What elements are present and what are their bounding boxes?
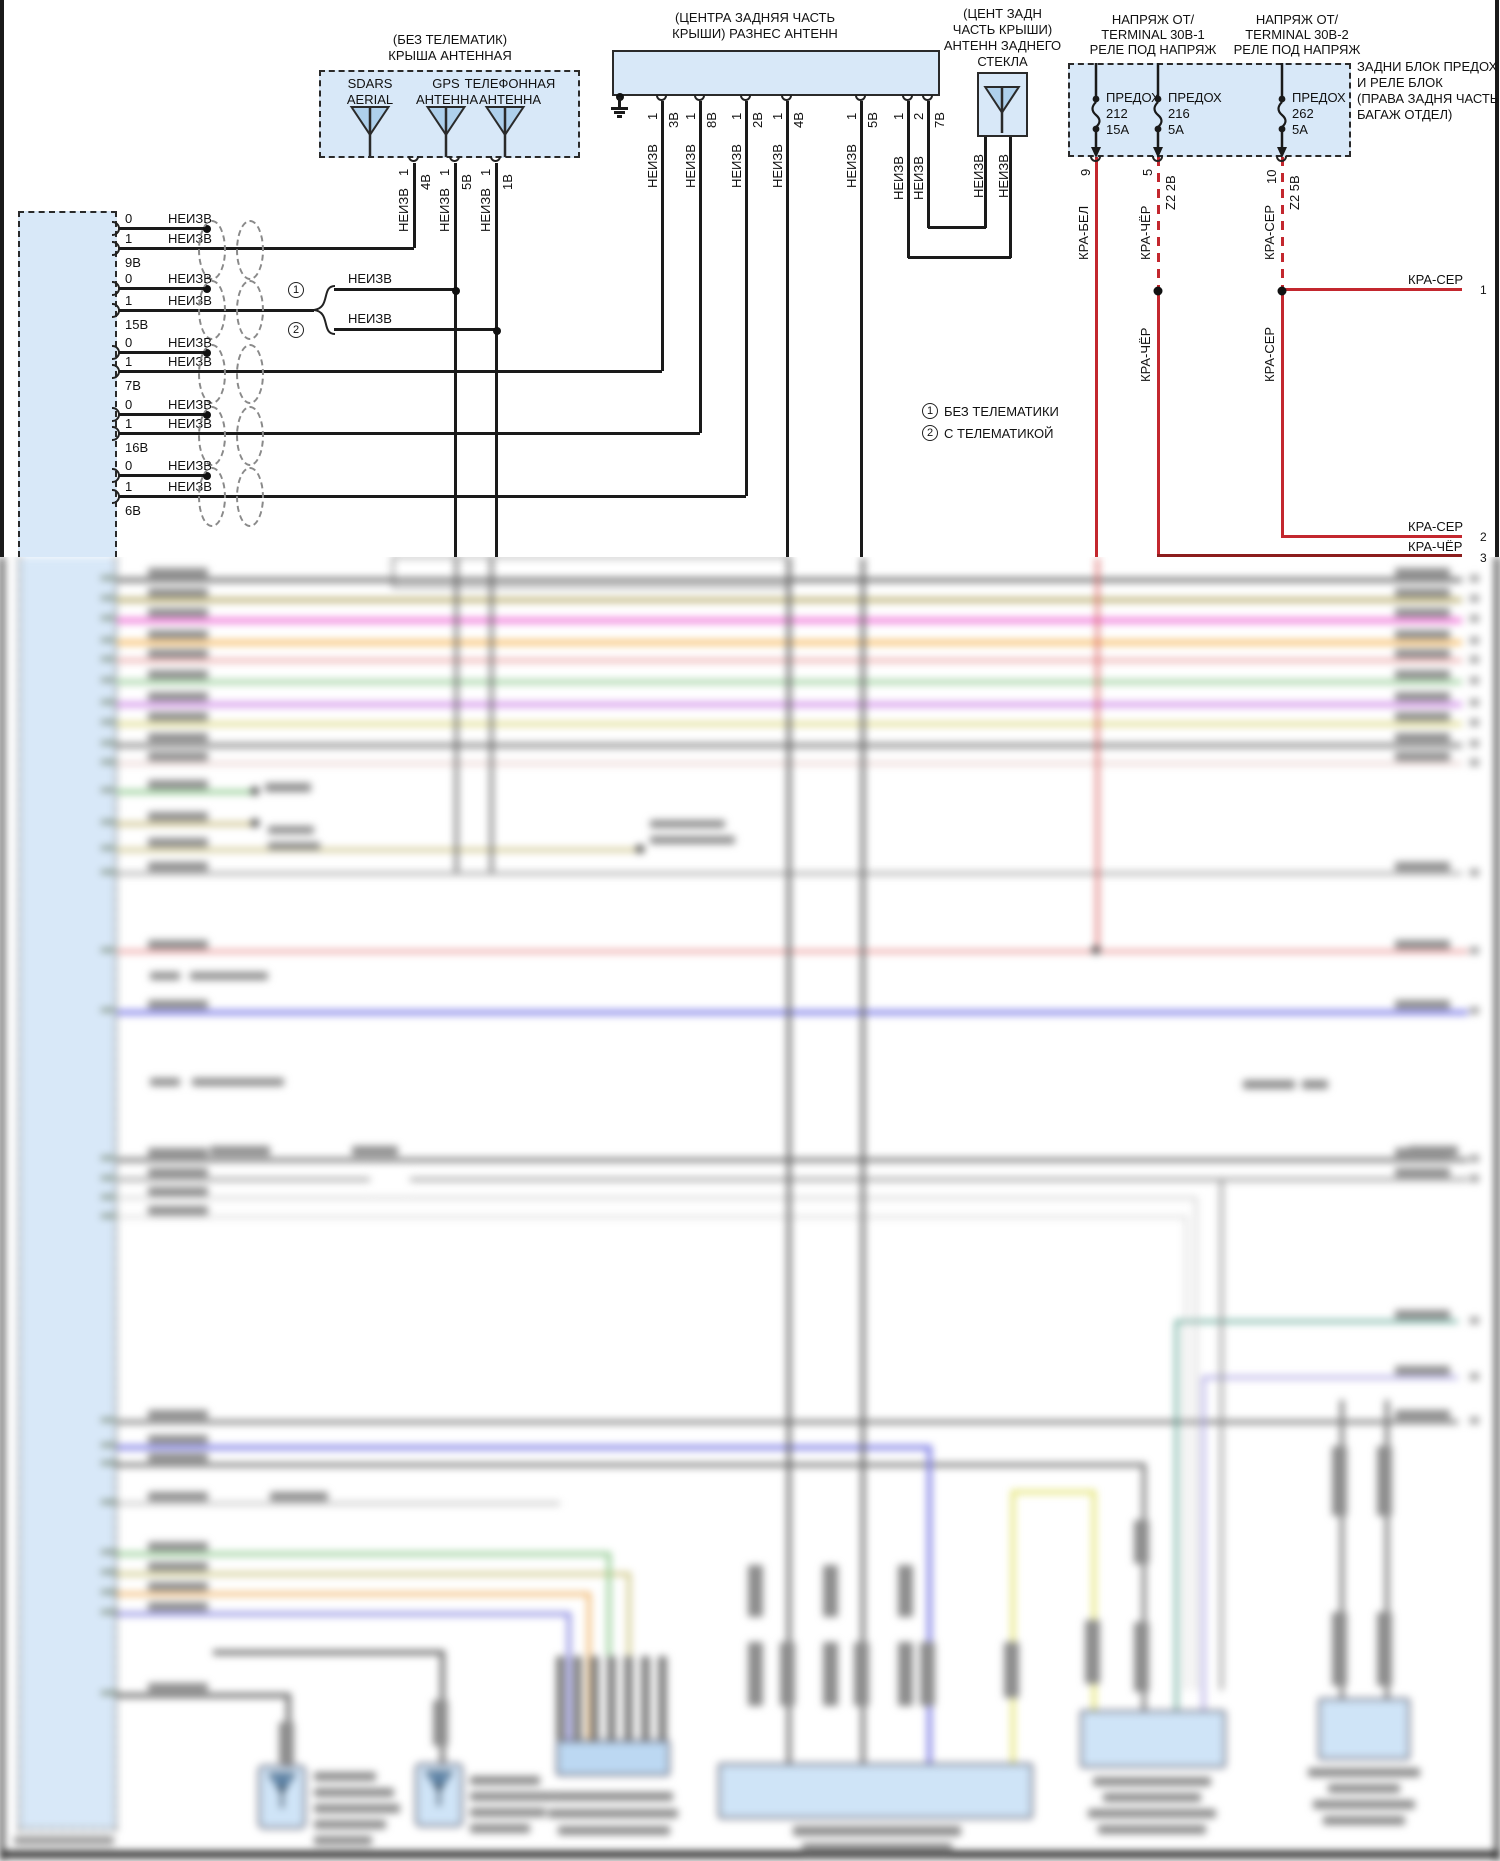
wire-kra-ser-solid <box>1281 290 1284 538</box>
blur-junction <box>1092 946 1101 955</box>
blur-text-patch <box>1134 1520 1149 1564</box>
blur-text-patch <box>148 630 208 639</box>
wire-label-kra-ser-low: КРА-СЕР <box>1263 316 1276 382</box>
roof-pin-number: 1 <box>438 162 451 176</box>
blur-pin-tick <box>101 576 117 580</box>
ecu-wire-a-4 <box>119 474 207 477</box>
blur-text-patch <box>148 940 208 949</box>
blur-text-patch <box>314 1804 400 1813</box>
fuse-block-label-4: БАГАЖ ОТДЕЛ) <box>1357 107 1452 122</box>
diversity-pin-number: 1 <box>771 100 784 120</box>
blur-wire-h <box>1011 1490 1092 1494</box>
supply1-line-1: НАПРЯЖ ОТ/ <box>1073 12 1233 27</box>
diversity-wire-1 <box>699 101 702 433</box>
roof-pin-connector: 1В <box>501 164 514 190</box>
blur-text-patch <box>748 1642 763 1706</box>
blur-wire-v <box>1220 1178 1223 1690</box>
roof-antenna-title-1: (БЕЗ ТЕЛЕМАТИК) <box>350 32 550 47</box>
right-wire-label-2: КРА-СЕР <box>1408 519 1463 534</box>
blur-text-patch <box>1395 1410 1450 1419</box>
blur-text-patch <box>1004 1642 1019 1698</box>
fuse-pin-number: 5 <box>1141 162 1154 176</box>
diversity-pin-connector: 8В <box>705 102 718 128</box>
diversity-pin-connector: 7В <box>933 102 946 128</box>
fuse-block-label-2: И РЕЛЕ БЛОК <box>1357 75 1443 90</box>
diversity-pin-connector: 4В <box>792 102 805 128</box>
blur-pin-tick <box>101 1156 117 1160</box>
ecu-connector-box <box>18 211 117 557</box>
blur-pin-tick <box>101 1570 117 1574</box>
wire-label-kra-cher-top: КРА-ЧЁР <box>1139 194 1152 260</box>
wiring-diagram-page: (БЕЗ ТЕЛЕМАТИК) КРЫША АНТЕННАЯ SDARS AER… <box>0 0 1500 1861</box>
ecu-pin-b: 1 <box>125 354 132 369</box>
blur-pin-tick <box>101 1176 117 1180</box>
blur-wire-v <box>1495 557 1499 1861</box>
roof-pin-number: 1 <box>479 162 492 176</box>
blur-text-patch <box>148 1562 208 1571</box>
blur-text-patch <box>190 972 268 980</box>
component-connector <box>556 1740 670 1776</box>
fuse-symbol-216 <box>1150 63 1166 159</box>
blur-wire-h <box>117 1463 1142 1467</box>
ecu-wire-a-0 <box>119 227 207 230</box>
blur-text-patch <box>1395 862 1450 871</box>
blur-text-patch <box>148 649 208 658</box>
glass-wire-label-1: НЕИЗВ <box>997 146 1010 198</box>
blur-text-patch <box>658 1656 667 1740</box>
supply1-line-2: TERMINAL 30В-1 <box>1073 27 1233 42</box>
blur-wire-h <box>117 848 645 852</box>
blur-text-patch <box>1302 1080 1328 1089</box>
blur-text-patch <box>1377 1612 1392 1686</box>
blur-wire-v <box>455 558 458 872</box>
ecu-pin-a: 0 <box>125 397 132 412</box>
twisted-pair-symbol <box>236 344 264 404</box>
blur-wire-h <box>117 1592 587 1596</box>
blur-pin-tick <box>101 1691 117 1695</box>
blur-pin-tick <box>101 820 117 824</box>
junction-dot-ser <box>1278 287 1287 296</box>
blur-pin-tick <box>101 1590 117 1594</box>
blur-wire-h <box>117 1010 1468 1015</box>
blur-text-patch <box>314 1772 376 1781</box>
right-pin-1: 1 <box>1480 283 1487 298</box>
blur-pin-tick <box>101 1610 117 1614</box>
diversity-wire-label: НЕИЗВ <box>730 136 743 188</box>
gps-antenna-icon <box>424 104 468 160</box>
legend-text-1: БЕЗ ТЕЛЕМАТИКИ <box>944 404 1059 419</box>
blur-junction <box>251 787 260 796</box>
wire-kra-cher-solid <box>1157 290 1160 557</box>
fuse-symbol-212 <box>1088 63 1104 159</box>
variant-circle-1: 1 <box>288 282 304 298</box>
blur-text-patch <box>1395 733 1450 742</box>
blur-text-patch <box>279 1722 294 1764</box>
blur-text-patch <box>1088 1809 1216 1818</box>
wire-label-kra-ser-top: КРА-СЕР <box>1263 194 1276 260</box>
ecu-connector-label: 15В <box>125 317 148 332</box>
diversity-wire-label: НЕИЗВ <box>684 136 697 188</box>
roof-wire-label: НЕИЗВ <box>438 182 451 232</box>
blur-text-patch <box>148 1582 208 1591</box>
blur-text-patch <box>1395 649 1450 658</box>
right-pin-2: 2 <box>1480 530 1487 545</box>
blur-text-patch <box>650 820 725 828</box>
twisted-pair-symbol <box>236 467 264 527</box>
blur-pin-tick <box>101 700 117 704</box>
blur-wire-v <box>1195 1197 1197 1690</box>
wire-kra-bel <box>1095 157 1098 557</box>
fuse-rating: 5А <box>1168 122 1184 137</box>
blur-text-patch <box>210 1146 270 1156</box>
legend-circle-1: 1 <box>922 403 938 419</box>
blur-pin-tick-right <box>1470 677 1479 684</box>
ground-stem <box>618 97 621 107</box>
blur-text-patch <box>641 1656 650 1740</box>
blur-text-patch <box>748 1565 763 1617</box>
blur-wire-h <box>117 822 258 826</box>
wire-kra-ser-dashed <box>1281 157 1284 290</box>
roof-antenna-wire-0 <box>413 163 416 248</box>
blur-text-patch <box>148 608 208 617</box>
blur-text-patch <box>1332 1612 1347 1686</box>
blur-text-patch <box>1377 1446 1392 1516</box>
branch-wire-2 <box>334 328 496 331</box>
blur-text-patch <box>433 1700 448 1746</box>
blur-text-patch <box>1395 1168 1450 1177</box>
blur-text-patch <box>1093 1777 1211 1786</box>
blur-text-patch <box>854 1642 869 1706</box>
blur-text-patch <box>314 1820 386 1829</box>
blur-text-patch <box>148 1187 208 1196</box>
blur-text-patch <box>1395 588 1450 597</box>
twisted-pair-symbol <box>198 280 226 340</box>
telephone-antenna-icon <box>483 104 527 160</box>
supply2-line-3: РЕЛЕ ПОД НАПРЯЖ <box>1217 42 1377 57</box>
ecu-pin-a: 0 <box>125 211 132 226</box>
fuse-number: 212 <box>1106 106 1128 121</box>
twisted-pair-symbol <box>198 344 226 404</box>
blur-text-patch <box>148 838 208 847</box>
roof-wire-junction-2 <box>493 327 501 335</box>
blur-pin-tick <box>101 616 117 620</box>
fuse-symbol-262 <box>1274 63 1290 159</box>
blur-pin-tick-right <box>1470 740 1479 747</box>
blur-pin-tick <box>101 1461 117 1465</box>
twisted-pair-symbol <box>236 406 264 466</box>
diversity-pin-number: 1 <box>646 100 659 120</box>
u-link-inner <box>928 226 986 229</box>
roof-wire-junction-1 <box>452 287 460 295</box>
fuse-block-label-3: (ПРАВА ЗАДНЯ ЧАСТЬ <box>1357 91 1498 106</box>
component-module-far-right <box>1318 1698 1410 1760</box>
blur-text-patch <box>1395 1310 1450 1319</box>
page-border-left <box>0 0 4 557</box>
blur-text-patch <box>148 1492 208 1501</box>
wire-kra-cher-dashed <box>1157 157 1160 290</box>
blur-wire-h <box>1175 1320 1458 1323</box>
ecu-pin-a: 0 <box>125 458 132 473</box>
diversity-pin-number: 1 <box>892 100 905 120</box>
blur-wire-v <box>1185 1216 1187 1690</box>
blur-text-patch <box>1332 1446 1347 1516</box>
fuse-pin-connector: Z2 2В <box>1164 164 1177 210</box>
glass-wire-label-0: НЕИЗВ <box>972 146 985 198</box>
ground-bar-3 <box>617 115 622 118</box>
blur-wire-h <box>117 1158 1468 1162</box>
component-module-right <box>1080 1710 1226 1768</box>
ecu-pin-b: 1 <box>125 416 132 431</box>
fuse-block-label-1: ЗАДНИ БЛОК ПРЕДОХ <box>1357 59 1497 74</box>
blur-pin-tick-right <box>1470 1373 1479 1380</box>
fuse-rating: 15А <box>1106 122 1129 137</box>
supply1-line-3: РЕЛЕ ПОД НАПРЯЖ <box>1073 42 1233 57</box>
twisted-pair-symbol <box>236 220 264 280</box>
diversity-pin-number: 1 <box>684 100 697 120</box>
blur-text-patch <box>268 842 320 850</box>
ecu-pin-b: 1 <box>125 293 132 308</box>
blur-text-patch <box>148 733 208 742</box>
blur-wire-v <box>1202 1376 1205 1712</box>
wire-kra-ser-horiz-1 <box>1281 288 1462 291</box>
blur-text-patch <box>823 1642 838 1706</box>
legend-text-2: С ТЕЛЕМАТИКОЙ <box>944 426 1053 441</box>
blur-wire-v <box>1096 558 1099 950</box>
blur-text-patch <box>148 692 208 701</box>
blur-text-patch <box>148 1435 208 1444</box>
diversity-antenna-box <box>612 50 940 96</box>
blur-pin-tick <box>101 657 117 661</box>
twisted-pair-symbol <box>198 467 226 527</box>
diversity-title-1: (ЦЕНТРА ЗАДНЯЯ ЧАСТЬ <box>645 10 865 25</box>
diversity-wire-4 <box>860 101 863 557</box>
blur-wire-h <box>117 1552 607 1556</box>
blur-pin-tick <box>101 846 117 850</box>
blur-pin-tick <box>101 638 117 642</box>
blur-text-patch <box>1098 1825 1206 1834</box>
diversity-wire-label: НЕИЗВ <box>892 148 905 200</box>
blur-pin-tick-right <box>1470 1007 1479 1014</box>
blur-text-patch <box>470 1792 554 1801</box>
blur-text-patch <box>1395 1366 1450 1375</box>
fuse-number: 216 <box>1168 106 1190 121</box>
blur-wire-h <box>117 1197 1195 1199</box>
diversity-pin-number: 2 <box>912 100 925 120</box>
blur-text-patch <box>1395 712 1450 721</box>
diversity-wire-label: НЕИЗВ <box>912 148 925 200</box>
blur-text-patch <box>1395 568 1450 577</box>
blur-wire-h <box>117 1178 1468 1181</box>
branch-wire-label-2: НЕИЗВ <box>348 311 392 326</box>
blur-text-patch <box>148 670 208 679</box>
twisted-pair-symbol <box>236 280 264 340</box>
blur-text-patch <box>314 1836 372 1845</box>
blur-text-patch <box>148 1453 208 1462</box>
blur-pin-tick <box>101 870 117 874</box>
blur-text-patch <box>150 1078 180 1086</box>
blur-wire-v <box>927 1445 932 1765</box>
blur-pin-tick <box>101 948 117 952</box>
blur-pin-tick-right <box>1470 595 1479 602</box>
blur-text-patch <box>192 1078 284 1086</box>
blur-wire-h <box>117 790 258 794</box>
wire-kra-ser-horiz-2 <box>1281 535 1462 538</box>
blur-text-patch <box>148 812 208 821</box>
blur-text-patch <box>148 1148 208 1157</box>
blur-pin-tick <box>101 1500 117 1504</box>
blur-text-patch <box>780 1642 795 1706</box>
page-border-right <box>1495 0 1499 557</box>
roof-pin-connector: 4В <box>419 164 432 190</box>
blur-pin-tick <box>101 741 117 745</box>
blur-wire-v <box>490 558 493 872</box>
diversity-wire-5 <box>907 101 910 258</box>
supply2-line-1: НАПРЯЖ ОТ/ <box>1217 12 1377 27</box>
blur-pin-tick-right <box>1470 656 1479 663</box>
glass-title-3: АНТЕНН ЗАДНЕГО <box>930 38 1075 53</box>
sdars-antenna-icon <box>348 104 392 160</box>
blur-pin-tick-right <box>1470 637 1479 644</box>
fuse-pin-number: 9 <box>1079 162 1092 176</box>
blur-text-patch <box>898 1565 913 1617</box>
blur-wire-h <box>117 1612 567 1616</box>
ecu-connector-label: 9В <box>125 255 141 270</box>
phone-label-1: ТЕЛЕФОННАЯ <box>455 76 565 91</box>
blur-text-patch <box>1243 1080 1295 1089</box>
blur-text-patch <box>558 1826 670 1835</box>
blur-pin-tick-right <box>1470 1155 1479 1162</box>
right-wire-label-3: КРА-ЧЁР <box>1408 539 1462 554</box>
blur-text-patch <box>1395 1000 1450 1009</box>
blur-pin-tick-right <box>1470 699 1479 706</box>
blur-text-patch <box>148 1683 208 1692</box>
blur-text-patch <box>624 1656 633 1740</box>
blur-text-patch <box>1395 940 1450 949</box>
blur-pin-tick <box>101 788 117 792</box>
blur-text-patch <box>148 862 208 871</box>
blur-wire-v <box>787 558 791 1763</box>
component-module-main <box>718 1763 1033 1819</box>
blur-wire-h <box>117 1445 927 1450</box>
blur-text-patch <box>650 836 735 844</box>
blur-text-patch <box>470 1824 530 1833</box>
blur-text-patch <box>1085 1620 1100 1684</box>
right-wire-label-1: КРА-СЕР <box>1408 272 1463 287</box>
supply2-line-2: TERMINAL 30В-2 <box>1217 27 1377 42</box>
blur-pin-tick-right <box>1470 615 1479 622</box>
blur-text-patch <box>607 1656 616 1740</box>
ecu-pin-b: 1 <box>125 479 132 494</box>
blur-wire-v <box>0 557 4 1861</box>
ecu-pin-a: 0 <box>125 271 132 286</box>
junction-dot-cher <box>1154 287 1163 296</box>
ecu-wire-b-0 <box>119 247 414 250</box>
blur-text-patch <box>148 588 208 597</box>
blur-text-patch <box>148 1206 208 1215</box>
diversity-wire-label: НЕИЗВ <box>845 136 858 188</box>
blur-text-patch <box>265 783 311 792</box>
diversity-wire-2 <box>745 101 748 496</box>
ground-bar-1 <box>611 107 628 110</box>
glass-title-2: ЧАСТЬ КРЫШИ) <box>930 22 1075 37</box>
u-link-outer <box>908 256 1011 259</box>
blur-text-patch <box>793 1826 961 1836</box>
ecu-pin-b: 1 <box>125 231 132 246</box>
blur-wire-v <box>1175 1320 1178 1712</box>
blur-text-patch <box>590 1656 599 1740</box>
ecu-connector-label: 6В <box>125 503 141 518</box>
blur-text-patch <box>370 1168 410 1190</box>
fuse-name: ПРЕДОХ <box>1168 90 1222 105</box>
blur-pin-tick-right <box>1470 1175 1479 1182</box>
blur-text-patch <box>802 1843 952 1853</box>
blur-text-patch <box>148 752 208 761</box>
blur-text-patch <box>314 1788 394 1797</box>
blur-pin-tick-right <box>1470 719 1479 726</box>
blur-pin-tick-right <box>1470 947 1479 954</box>
roof-antenna-title-2: КРЫША АНТЕННАЯ <box>350 48 550 63</box>
blur-text-patch <box>148 1542 208 1551</box>
blur-text-patch <box>150 972 180 980</box>
variant-circle-2: 2 <box>288 322 304 338</box>
blur-wire-h <box>117 1572 627 1576</box>
blur-pin-tick-right <box>1470 869 1479 876</box>
blur-connector-strip <box>392 557 790 588</box>
blur-text-patch <box>148 1410 208 1419</box>
ecu-connector-label: 7В <box>125 378 141 393</box>
blur-text-patch <box>1328 1784 1400 1793</box>
blur-text-patch <box>1395 752 1450 761</box>
roof-wire-label: НЕИЗВ <box>397 182 410 232</box>
blur-text-patch <box>553 1792 673 1801</box>
blur-pin-tick <box>101 1195 117 1199</box>
diversity-wire-label: НЕИЗВ <box>771 136 784 188</box>
blur-pin-tick <box>101 1443 117 1447</box>
blur-text-patch <box>1395 670 1450 679</box>
sdars-label-1: SDARS <box>340 76 400 91</box>
blur-pin-tick <box>101 760 117 764</box>
blur-text-patch <box>148 1000 208 1009</box>
blur-wire-h <box>1202 1376 1458 1379</box>
blur-text-patch <box>1395 630 1450 639</box>
diversity-pin-number: 1 <box>730 100 743 120</box>
blur-pin-tick <box>101 1008 117 1012</box>
fuse-rating: 5А <box>1292 122 1308 137</box>
blur-wire-h <box>0 1851 1500 1858</box>
blur-text-patch <box>470 1808 546 1817</box>
blur-text-patch <box>573 1656 582 1740</box>
roof-pin-number: 1 <box>397 162 410 176</box>
ecu-connector-box-lower <box>18 557 117 1830</box>
blur-text-patch <box>352 1146 398 1156</box>
diversity-pin-connector: 5В <box>866 102 879 128</box>
blur-pin-tick-right <box>1470 759 1479 766</box>
blur-wire-v <box>567 1612 571 1742</box>
fuse-pin-connector: Z2 5В <box>1288 164 1301 210</box>
blur-text-patch <box>148 568 208 577</box>
blur-pin-tick-right <box>1470 575 1479 582</box>
diversity-wire-0 <box>661 101 664 371</box>
rear-glass-antenna-icon <box>982 84 1022 136</box>
blur-junction <box>636 845 645 854</box>
branch-wire-label-1: НЕИЗВ <box>348 271 392 286</box>
branch-wire-1 <box>334 288 455 291</box>
blur-pin-tick-right <box>1470 1417 1479 1424</box>
blur-pin-tick <box>101 1214 117 1218</box>
blur-text-patch <box>148 780 208 789</box>
blur-pin-tick <box>101 1550 117 1554</box>
blur-antenna-icon <box>266 1771 298 1811</box>
